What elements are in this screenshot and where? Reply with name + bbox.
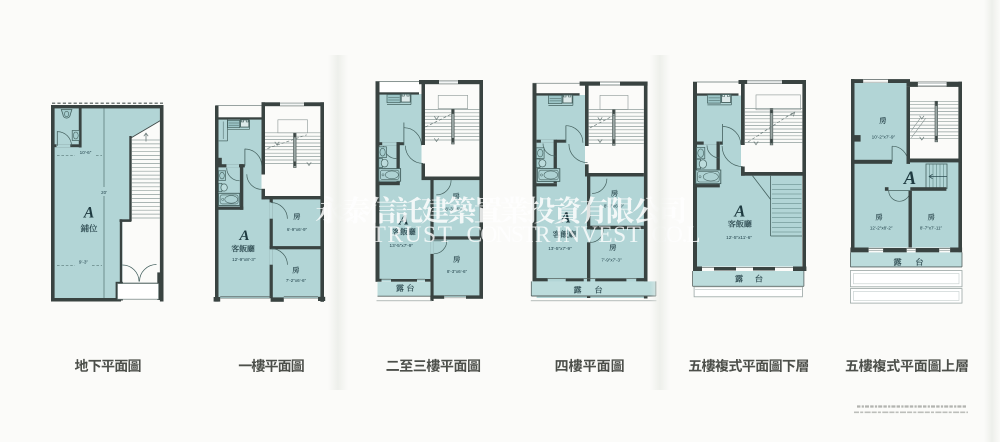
svg-text:A: A — [903, 169, 916, 189]
svg-text:INVEST: INVEST — [555, 222, 641, 248]
svg-text:9′-3″: 9′-3″ — [79, 259, 89, 264]
svg-text:12′-5″x11′-6″: 12′-5″x11′-6″ — [726, 235, 752, 240]
svg-text:7′-9″x7′-3″: 7′-9″x7′-3″ — [601, 258, 622, 263]
svg-text:10′-2″x7′-9″: 10′-2″x7′-9″ — [872, 135, 896, 140]
svg-text:20′: 20′ — [101, 190, 107, 195]
svg-text:A: A — [733, 201, 745, 220]
svg-text:6′-9″x6′-9″: 6′-9″x6′-9″ — [287, 227, 308, 232]
svg-text:TRUST: TRUST — [372, 222, 453, 248]
svg-text:CONSTR: CONSTR — [467, 222, 551, 248]
svg-text:7′-2″x6′-6″: 7′-2″x6′-6″ — [286, 278, 307, 283]
svg-text:8′-7″x7′-11″: 8′-7″x7′-11″ — [920, 226, 943, 231]
svg-text:A: A — [238, 228, 249, 244]
svg-text:A: A — [83, 205, 94, 222]
svg-text:8′-3″x6′-6″: 8′-3″x6′-6″ — [447, 269, 468, 274]
svg-text:10′-6″: 10′-6″ — [80, 150, 92, 155]
svg-text:12′-9″x8′-3″: 12′-9″x8′-3″ — [232, 257, 256, 262]
svg-text:12′-2″x8′-2″: 12′-2″x8′-2″ — [870, 226, 893, 231]
